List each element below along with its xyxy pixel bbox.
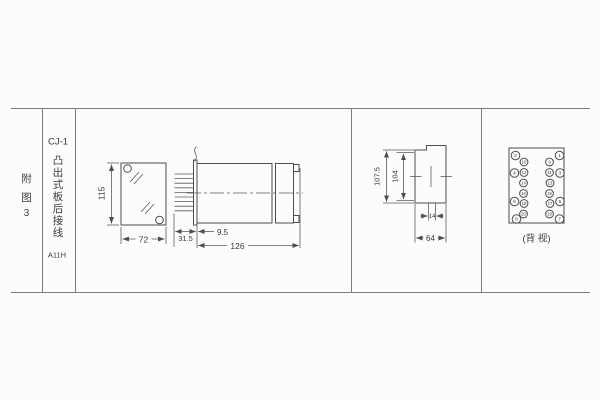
dim-cutout-width: 64 — [426, 234, 435, 243]
subtitle-char: 板 — [53, 190, 64, 203]
relay-outline-drawing: 附 图 3 CJ-1 凸 出 式 板 后 接 线 A11H 115 — [0, 0, 600, 400]
subtitle-char: 式 — [53, 178, 64, 191]
terminal-number: 5 — [559, 199, 562, 205]
terminals-outer-left: 2 4 6 8 — [510, 151, 521, 223]
dim-height: 115 — [97, 186, 107, 200]
terminal-number: 2 — [514, 153, 517, 159]
rear-tab — [294, 216, 300, 223]
terminal-number: 16 — [521, 191, 526, 196]
subtitle-char: 线 — [53, 226, 64, 239]
side-view: 31.5 9.5 126 — [174, 147, 303, 252]
mounting-flange — [194, 160, 198, 225]
side-view-dimensions: 31.5 9.5 126 — [174, 168, 300, 251]
back-view-caption: (背 视) — [523, 233, 551, 245]
terminal-number: 15 — [547, 191, 552, 196]
dim-outer-height: 107.5 — [373, 167, 382, 186]
terminal-number: 3 — [559, 171, 562, 177]
terminal-number: 10 — [522, 160, 527, 165]
terminals-inner-right: 9 11 13 15 17 19 — [546, 158, 554, 218]
dim-inner-height: 104 — [391, 170, 400, 183]
terminal-number: 13 — [548, 181, 553, 186]
terminal-number: 7 — [558, 217, 561, 223]
dim-terminal-depth: 31.5 — [178, 234, 193, 243]
dim-length: 126 — [230, 241, 244, 251]
terminal-number: 12 — [522, 170, 527, 175]
hatch-marks — [130, 172, 154, 214]
figure-label-char: 附 — [21, 172, 32, 185]
rear-tab — [294, 165, 300, 172]
figure-label-char: 图 — [21, 192, 32, 204]
terminal-pins — [175, 174, 194, 211]
terminal-number: 4 — [513, 171, 516, 177]
terminal-number: 14 — [521, 181, 526, 186]
subtitle-char: 凸 — [53, 155, 64, 167]
terminal-number: 1 — [558, 153, 561, 159]
type-code-label: A11H — [48, 251, 66, 260]
terminal-number: 8 — [515, 217, 518, 223]
cutout-outline — [415, 146, 446, 204]
dim-slot-width: 14 — [429, 214, 436, 220]
dim-inset: 9.5 — [217, 228, 229, 237]
mounting-screw-icon — [124, 165, 132, 173]
terminals-outer-right: 1 3 5 7 — [555, 151, 564, 223]
front-view-dimensions: 115 72 — [97, 163, 167, 245]
terminal-number: 9 — [548, 160, 551, 165]
panel-cutout-view: 107.5 104 14 64 — [373, 146, 453, 244]
subtitle-char: 出 — [53, 166, 64, 179]
drawing-sheet: 附 图 3 CJ-1 凸 出 式 板 后 接 线 A11H 115 — [0, 0, 600, 400]
terminal-number: 17 — [548, 201, 553, 206]
terminal-number: 20 — [521, 212, 526, 217]
figure-label-char: 3 — [24, 208, 30, 219]
terminal-number: 18 — [522, 201, 527, 206]
dim-width: 72 — [139, 235, 149, 245]
break-mark — [195, 147, 197, 162]
subtitle-char: 后 — [53, 203, 64, 215]
cutout-dimensions: 107.5 104 14 64 — [373, 150, 447, 243]
terminals-inner-left: 10 12 14 16 18 20 — [520, 158, 528, 218]
model-label: CJ-1 — [48, 137, 68, 148]
terminal-number: 6 — [513, 199, 516, 205]
mounting-screw-icon — [156, 216, 164, 224]
front-view: 115 72 — [97, 163, 167, 245]
terminal-number: 19 — [547, 212, 552, 217]
back-view: 2 4 6 8 10 12 14 16 18 20 9 11 — [509, 148, 564, 245]
title-block: 附 图 3 CJ-1 凸 出 式 板 后 接 线 A11H — [21, 137, 68, 260]
subtitle-char: 接 — [53, 214, 64, 227]
terminal-number: 11 — [547, 170, 552, 175]
